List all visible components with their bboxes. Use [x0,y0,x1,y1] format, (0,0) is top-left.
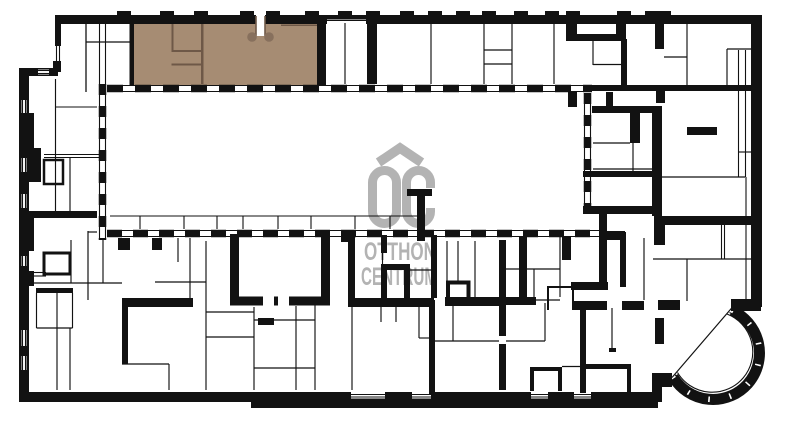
svg-text:OTTHON: OTTHON [364,238,436,266]
